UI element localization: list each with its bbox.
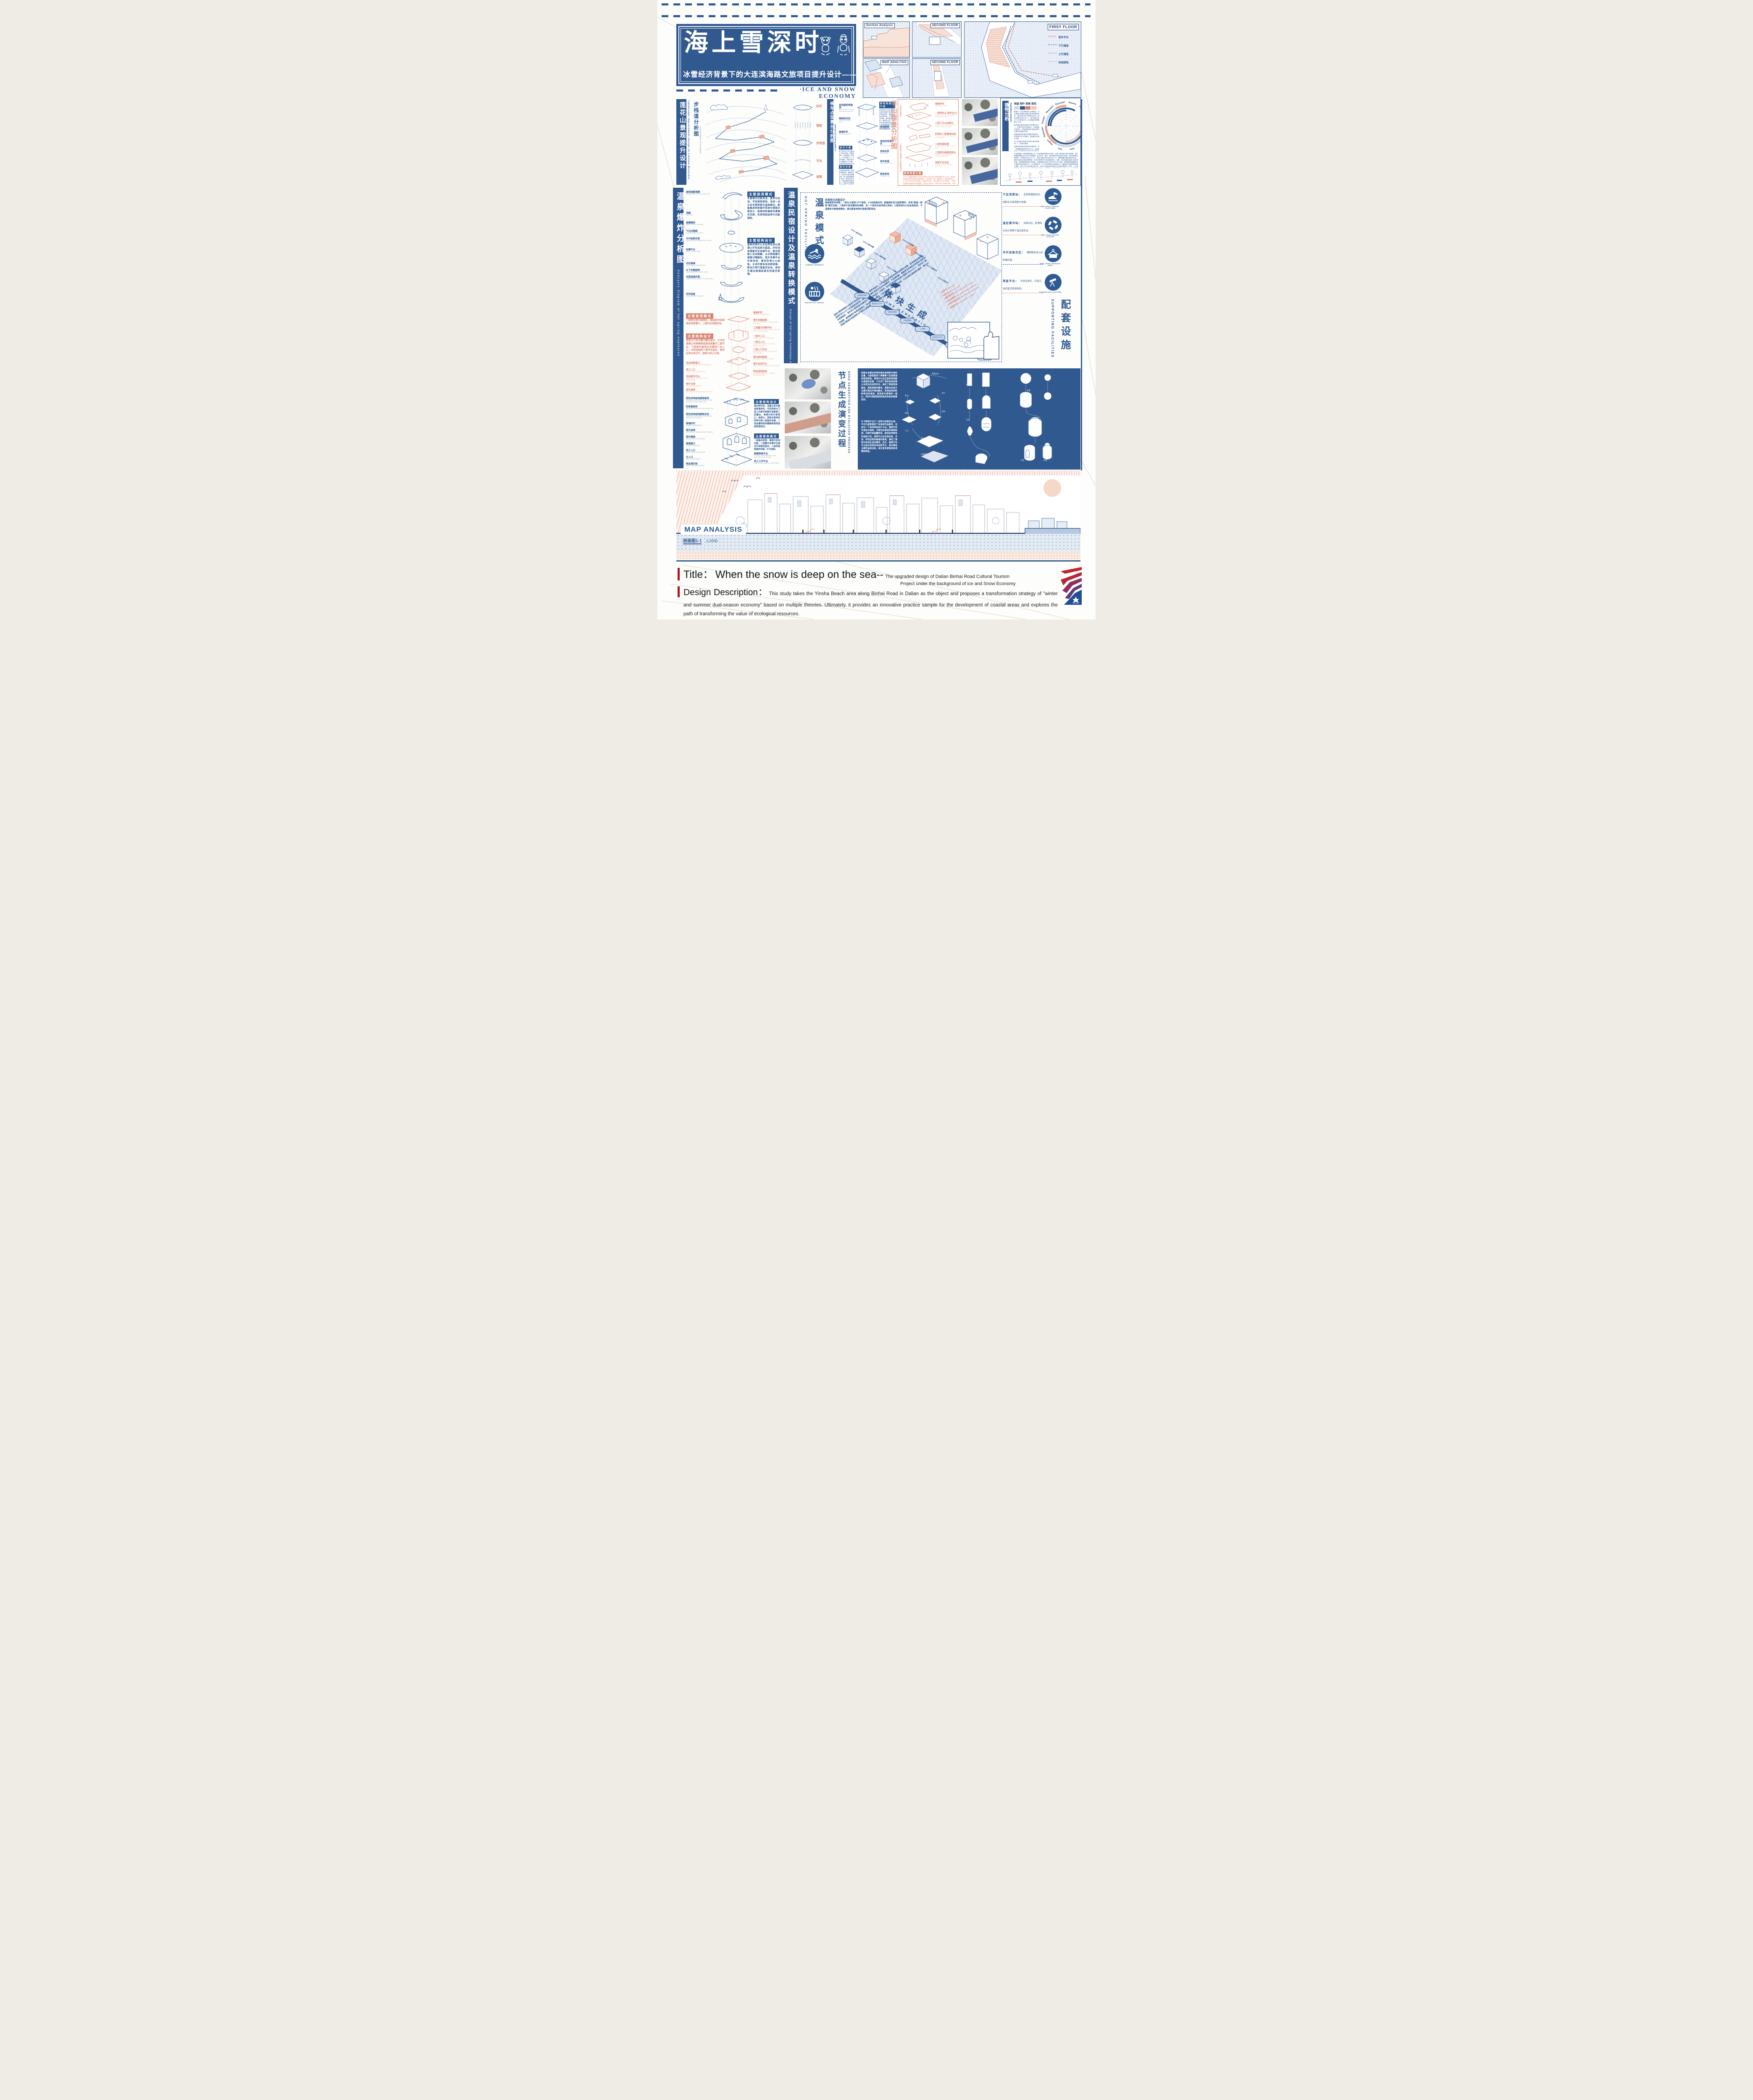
homestay-house-axon [975, 233, 1000, 264]
section-header: 主要结构设计 [754, 399, 779, 404]
section-text: 错层立方体与露天露台组合，正中的混凝土材质楼梯直接连接露天二层平台，下层室内咖啡… [686, 339, 725, 356]
section-header: 设计分析 [839, 165, 852, 169]
part-label: 购票等候平台TICKET PURCHASING AND WAITING PLAT… [754, 453, 780, 459]
pool-use-mode-block: 主要使用模式 冬夏模式切换灵活，夏季为泳池，可供游客使用，池深一点五米冬季转换为… [747, 190, 780, 220]
month-label: October [1041, 116, 1046, 124]
first-floor-legend: 室外平台 下行通道 上行通道 场地绿地 [1048, 32, 1078, 66]
part-label: 饮品领取窗口DRINK COLLECTION WINDOW [686, 362, 717, 366]
homestay-house-axon [923, 196, 949, 229]
section-header: 主要使用模式 [754, 433, 779, 438]
note-text: 对于半山腰处观景平台的设计借鉴之前的安吉茶室景馆的设计手法，希望在保留该处停车观… [903, 176, 955, 186]
section-text: 轴对称布局，混凝土体块高迪错落排布，中间拱券大门进入内部可两侧分流直通二层露台，… [754, 405, 780, 428]
section-header: 设计介绍 [839, 146, 852, 150]
halfmountain-note: 使用场景介绍 对于半山腰处观景平台的设计借鉴之前的安吉茶室景馆的设计手法，希望在… [903, 168, 955, 186]
halfmountain-exploded-axon [903, 101, 933, 168]
panel-label: SECOND FLOOR [930, 60, 960, 65]
waiting-title-bar: 候车点观景台分析图 [827, 99, 833, 185]
section-scale: 1:2000 [706, 539, 718, 543]
layer-label: 栏杆 [816, 105, 822, 108]
dashed-rule-under-top [662, 15, 1091, 17]
waiting-title-cn: 候车点观景台分析图 [828, 101, 834, 143]
part-label: 主入口MAIN ENTRANCE [686, 456, 717, 460]
section-header: 主要使用模式 [686, 313, 713, 319]
explosion-title-cn: 温泉爆炸分析图 [674, 192, 683, 265]
render-road [785, 412, 831, 433]
facility-ring-text: WET ZONE BUFFER STATION [1038, 234, 1063, 238]
supporting-item: 半开放换衣区： 兼顾隐私性与自然通风感。 [1003, 248, 1043, 265]
flow-step-pill: 开启遮阳棚 [900, 318, 915, 323]
section-analysis-panel: Section Analysis [863, 21, 910, 58]
facility-label: 观星平台： [1003, 280, 1019, 283]
section-name: 剖面图1-1 1:2000 [683, 537, 717, 544]
month-label: February [1078, 105, 1081, 114]
render-road [966, 139, 998, 153]
node-title-cn: 节点生成演变过程 [836, 371, 847, 468]
supporting-title-en: SUPPORTING FACILITIES [1051, 299, 1054, 362]
part-label: 室外桌椅OUTDOOR TABLES AND CHAIRS [686, 429, 717, 433]
part-label: 二层露天休憩平台THE SECOND FLOOR OPEN-AIR REST P… [753, 327, 780, 333]
part-label: 观景平台支柱Pillars of the viewing platform [935, 162, 957, 168]
vegetation-title-cn: 植物分析 [1003, 102, 1009, 121]
note-header: 使用场景介绍 [903, 171, 922, 175]
legend-label: 场地绿地 [1058, 62, 1068, 64]
decor-line [1085, 176, 1096, 314]
render-photo [962, 99, 998, 126]
part-label: 特色拱券结构廊架装饰SPECIAL ARCHED STRUCTURE PERGO… [686, 397, 717, 403]
flow-step-pill: 二次清洁 [915, 326, 930, 332]
cafe-use-mode-block: 主要使用模式 一层室内室外咖啡区，配备制作间和商品自取窗口，二层均为休憩空间。 [686, 312, 725, 326]
frame-line-bottom [676, 560, 1080, 562]
layer-label: 步栈道 [816, 142, 825, 145]
veg-paragraph: 玉兰的最佳种植时间是在春季或秋季，3、4月最为理想 [1014, 141, 1039, 145]
evolution-step-label: 场景模拟 [921, 453, 928, 456]
part-label: 室外休闲平台OUTDOOR LEISURE PLATFORM [753, 363, 780, 367]
footer-title-sub1: The upgraded design of Dalian Binhai Roa… [885, 574, 1009, 579]
render-photo [785, 436, 831, 469]
main-title: 海上雪深时 [684, 31, 823, 55]
evolution-step-label: 变形 [942, 410, 945, 413]
footpath-title-cn: 步栈道分析图 [693, 102, 700, 156]
hanger-icon [1045, 245, 1062, 262]
flow-step-pill: 全面清洁消毒 [854, 293, 870, 298]
layer-label: 平台 [816, 160, 822, 163]
legend-label: 上行通道 [1058, 53, 1068, 56]
homestay-title-cn: 温泉民宿设计及温泉转换模式 [786, 191, 796, 306]
halfmountain-panel: 一层停车观景点 二层室内文创咖啡厅与悬挑观景台 玻璃护栏Glass guardr… [898, 99, 959, 186]
legend-label: 室外平台 [1058, 37, 1068, 39]
flow-step-pill: 降温至24-28℃ [870, 301, 885, 307]
facility-label: 湿区缓冲站： [1003, 222, 1022, 225]
part-label: 钢结构支柱Steel structure pillar [839, 118, 854, 123]
lianhua-title-bar: 莲花山景观提升设计 [676, 99, 686, 185]
winter-icon-caption: WINTER HOT SPRING [802, 302, 827, 304]
evolution-step-label: 组装 [921, 437, 924, 440]
halfmountain-title-cn: 半山观景分析图 [889, 100, 898, 184]
facility-label: 干区观景站： [1003, 193, 1022, 196]
layer-label: 钢架 [816, 124, 822, 128]
part-label: 下沉式围椅SUNKEN ARMCHAIR [686, 230, 717, 234]
second-floor-panel-top: SECOND FLOOR [912, 21, 962, 58]
section-text: 温泉民宿中心无边界泳池以混凝土环形底座为基底，环形池体搭配环形休憩平台，更衣室嵌… [747, 244, 780, 276]
section-text: 冬夏模式切换灵活，夏季为泳池，可供游客使用，池深一点五米冬季转换为温泉模式，配备… [747, 197, 780, 220]
footer-title-row: Title： When the snow is deep on the sea-… [678, 566, 1060, 586]
part-label: 室外桌椅OUTDOOR TABLES AND CHAIRS [686, 389, 717, 393]
part-label: 室外长椅OUTDOOR BENCH [686, 383, 717, 387]
decor-line [1082, 319, 1096, 444]
summer-icon-caption: SUMMER SWIMMING [802, 264, 827, 266]
lifebuoy-icon [1045, 217, 1062, 234]
section-text: 不锈钢承担地基、梁架等承重结构，保障安全性，原木作为装饰覆盖外侧，减少直接接触恶… [839, 170, 854, 185]
panel-label: SECOND FLOOR [930, 23, 960, 28]
node-paragraph-1: 观景台设置在场地的高处或视野开阔的位置，为游客提供了俯瞰整个区域景观的绝佳视角。… [861, 372, 897, 418]
vegetation-summary: 大连滨海路一带的植物景观以人工与自然植被的融合为特色，形成了独特的山海生态廊道。… [1014, 153, 1078, 168]
render-photo [962, 157, 998, 185]
part-label: 休闲遮阳亭屋顶Roof of the leisure sunshade pavi… [839, 104, 854, 113]
massing-cube [866, 258, 876, 269]
part-label: 室内曲线座椅INDOOR CURVED SEATS [753, 356, 780, 360]
title-block: 海上雪深时 冰雪经济背景下的大连滨海路文旅项目提升设计—— [676, 24, 856, 86]
ticket-office-exploded-axon [720, 396, 752, 468]
red-accent-bar [678, 586, 680, 597]
render-photo [785, 402, 831, 433]
massing-cube [843, 235, 853, 246]
render-photo [785, 368, 831, 399]
legend-swatch-down-route [1048, 45, 1057, 45]
legend-label: 观姿 [1014, 103, 1019, 105]
massing-cube-pink [890, 231, 901, 243]
evolution-step-label: 外层 [1021, 459, 1024, 462]
part-label: 员工入口EMPLOYEE ENTRANCE [686, 449, 717, 454]
part-label: 二层地面肌理The texture of the second floor [935, 143, 957, 149]
render-photo [962, 128, 998, 155]
part-label: 一层次入口FIRST-LEVEL ENTRANCE [753, 335, 780, 339]
vegetation-section-strip [1004, 169, 1078, 183]
vegetation-legend: 观姿 观叶 观果 观花 [1014, 102, 1043, 110]
evolution-step-label: 内层 [1043, 459, 1047, 462]
legend-swatch-up-route [1048, 53, 1057, 53]
part-label: 特色造型装饰CHARACTERISTIC SHAPE DECORATION [753, 370, 780, 376]
part-label: 水下休憩座椅UNDERWATER REST SEAT [686, 269, 717, 273]
summer-swimming-icon [805, 244, 824, 263]
map-analysis-label-box: MAP ANALYSIS [681, 524, 746, 535]
part-label: 饮品制作平台BEVERAGE PRODUCTION PLATFORM [686, 375, 717, 381]
massing-cube [854, 247, 865, 257]
studio-logo [1061, 567, 1082, 606]
part-label: 玻璃护栏Glass guardrail [839, 131, 854, 135]
legend-label: 下行通道 [1058, 45, 1068, 47]
legend-swatch [1020, 106, 1025, 110]
supporting-item: 干区观景站： 全视角通透空间，适配全天候观景与休憩。 [1003, 190, 1043, 207]
evolution-step-label: 开洞 [966, 419, 970, 421]
footpath-exploded-layers [791, 101, 815, 183]
month-label: January [1068, 101, 1076, 106]
part-label: 夹胶玻璃外壁LAMINATED GLASS OUTER WALL [686, 276, 717, 280]
footer-title-main: When the snow is deep on the sea-- [715, 569, 883, 580]
explosion-title-en: AnaLysis diagram of hot spring explosion [677, 270, 680, 357]
node-paragraph-2: 打卡咖啡厅位于人流较为密集的区域，不仅为游客提供了休息和饮品服务，还成为一个具有… [861, 420, 897, 467]
footpath-title-en: AnaLysis diagram of the footpath [699, 126, 702, 181]
unit-function-text: 每栋建筑共四层，一层为大堂和LOFT客房，5.4米挑高空间，配备娱乐区与投影幕布… [825, 202, 922, 211]
part-label: 格栅围挡GRILLE ENCLOSURE [686, 222, 717, 226]
hand-phone-onsen-sketch [947, 319, 1000, 360]
render-plaza [788, 451, 831, 469]
render-pool [801, 378, 817, 390]
vegetation-paragraphs: 蔷薇在一年四季都是可以种植的，不过最佳的种植时间建议选择在春秋两季，春天和秋天的… [1014, 111, 1039, 151]
month-label: June [1070, 147, 1075, 151]
winter-hot-spring-icon [805, 282, 824, 301]
part-label: 休憩平台REST PLATFORM [686, 249, 717, 253]
layer-label: 底图 [816, 176, 822, 179]
footer-title-label: Title： [683, 569, 713, 580]
supporting-item: 湿区缓冲站： 衔接水区，防滑吸水设计保障干湿过渡安全。 [1003, 218, 1043, 235]
flow-step-pill: 切换泳池模式 [885, 310, 900, 315]
part-label: 遮阳格栅顶棚SUNSHADE GRILLE CEILING [686, 191, 717, 195]
section-header: 主要使用模式 [747, 192, 775, 197]
footer-desc-label: Design Description： [683, 588, 767, 597]
frame-line-right [1081, 99, 1082, 470]
first-floor-panel: FIRSY FLOOR 室外平台 下行通道 上行通道 场地绿地 [964, 21, 1081, 98]
part-label: 玻璃护栏GLASS GUARDRAIL [753, 312, 780, 316]
part-label: 玻璃护栏Glass guardrail [935, 103, 957, 107]
competition-board: 海上雪深时 冰雪经济背景下的大连滨海路文旅项目提升设计—— ·ICE AND S… [657, 0, 1096, 619]
part-label: 半开放更衣室SEMI-OPEN CHANGING ROOM [686, 238, 717, 242]
node-title-en: NODE GENERATION AND EVOLUTION PROCESS [847, 371, 850, 468]
part-label: 一层停车点 停车位×9Parking and viewing point on … [935, 112, 957, 118]
homestay-content: HOT SPRING FACILITIES 温泉模式 民宿单元功能设计 每栋建筑… [800, 192, 1002, 362]
part-label: 环形楼梯CIRCULAR STAIRCASE [686, 262, 717, 267]
ticket-structure-block: 主要结构设计 轴对称布局，混凝土体块高迪错落排布，中间拱券大门进入内部可两侧分流… [754, 397, 780, 428]
waiting-platform-panel: 候车点观景台分析图 Waiting area viewing platform … [827, 99, 896, 185]
footpath-contour-map [703, 100, 788, 184]
cafe-structure-block: 主要结构设计 错层立方体与露天露台组合，正中的混凝土材质楼梯直接连接露天二层平台… [686, 332, 725, 356]
dashed-rule-ice [676, 89, 780, 92]
part-label: 一层主入口MAIN ENTRANCE ON THE FIRST FLOOR [753, 341, 780, 347]
dashed-rule-top [662, 3, 1091, 5]
telescope-icon [1045, 274, 1062, 291]
part-label: 室外休憩桌椅OUTDOOR REST TABLES AND CHAIRS [753, 319, 780, 325]
flow-step-pill: 加热至30-35℃ [930, 335, 945, 340]
evolution-step-label: 移除 [905, 412, 908, 415]
legend-swatch [1025, 106, 1030, 110]
pool-structure-block: 主要结构设计 温泉民宿中心无边界泳池以混凝土环形底座为基底，环形池体搭配环形休憩… [747, 236, 780, 276]
planting-calendar-ring-chart: January February March April May June Ju… [1040, 100, 1081, 152]
homestay-house-axon [952, 210, 978, 242]
red-accent-bar [678, 568, 680, 580]
vegetation-title-bar: 植物分析 [1002, 101, 1009, 151]
footer-desc-row: Design Description： This study takes the… [678, 585, 1058, 619]
part-label: 环形底座RING-SHAPED BASE [686, 293, 717, 297]
halfmountain-side-label: 二层室内文创咖啡厅与悬挑观景台 [899, 143, 902, 184]
ticket-use-block: 主要使用模式 一层融合售票、储物与咨询功能，二层露天休憩平台通过外双路径直达，二… [754, 432, 780, 451]
evolution-step-label: 基础体块 [932, 373, 939, 375]
part-label: 玻璃护栏GLASS GUARDRAIL [686, 423, 717, 427]
section-text: 一层室内室外咖啡区，配备制作间和商品自取窗口，二层均为休憩空间。 [686, 319, 725, 326]
supporting-title-cn: 配套设施 [1057, 299, 1072, 362]
unit-function-header: 民宿单元功能设计 [825, 198, 922, 202]
panel-label: MAP ANALYSIS [880, 60, 908, 65]
legend-swatch-green [1048, 61, 1057, 62]
vegetation-title-en: Vegetation analysis [1009, 102, 1012, 149]
facility-ring-text: SEMI-OPEN CHANGING AREA [1038, 263, 1063, 266]
subtitle: 冰雪经济背景下的大连滨海路文旅项目提升设计—— [683, 68, 851, 79]
supporting-item: 观星平台： 开阔无遮栏，打造沉浸式星空观测体验。 [1003, 276, 1043, 293]
facility-ring-text: STARGAZING PLATFORM [1038, 291, 1063, 293]
part-label: 售票窗口TICKET WINDOW [686, 443, 717, 447]
evolution-step-label: 拆分 [942, 392, 945, 394]
part-label: 二层入口平台SECOND-FLOOR ENTRANCE PLATFORM [753, 349, 780, 354]
evolution-step-label: 下沉 [905, 430, 908, 432]
stippled-ground [676, 534, 1080, 551]
veg-paragraph: 蔷薇在一年四季都是可以种植的，不过最佳的种植时间建议选择在春秋两季，春天和秋天的… [1014, 111, 1039, 123]
evolution-step-label: 布置 [1027, 389, 1030, 392]
lianhua-title-cn: 莲花山景观提升设计 [678, 102, 686, 170]
facility-label: 半开放换衣区： [1003, 251, 1025, 254]
veg-paragraph: 春季通常是侧柏最佳的种植时间之一，在寒冷的冬季结束后，土壤湿度开始回升，侧柏能够… [1014, 124, 1039, 133]
part-label: 二层下沉山体部分The sunken mountain part on the … [935, 122, 957, 128]
beach-stipple [676, 551, 1080, 559]
homestay-title-en: Design of hot spring homestays and hot s… [789, 309, 792, 363]
unit-function-block: 民宿单元功能设计 每栋建筑共四层，一层为大堂和LOFT客房，5.4米挑高空间，配… [825, 198, 922, 211]
waiting-exploded-axon [855, 102, 879, 182]
map-analysis-panel: MAP ANALYSIS [863, 58, 910, 98]
render-road [973, 108, 998, 122]
render-road [970, 169, 998, 184]
panel-label: FIRSY FLOOR [1048, 24, 1079, 30]
part-label: 室外楼梯OUTDOOR STAIRCASE [686, 436, 717, 440]
facility-ring-text: DRY AREA VIEWING PLATFORM [1038, 206, 1063, 209]
month-label: July [1058, 147, 1062, 150]
evolution-step-label: 划分 [905, 394, 908, 397]
legend-swatch-outdoor-platform [1048, 36, 1057, 37]
second-floor-panel-bottom: SECOND FLOOR [912, 58, 962, 98]
legend-label: 观叶 [1020, 103, 1025, 105]
legend-label: 观果 [1025, 103, 1030, 105]
robot-skier-mascot-icon [837, 33, 850, 58]
part-label: 员工工作平台EMPLOYEE WORK PLATFORM [754, 460, 780, 465]
ring-pool-exploded-axon [717, 189, 746, 307]
homestay-title-bar: 温泉民宿设计及温泉转换模式 Design of hot spring homes… [784, 188, 798, 363]
part-label: 拱券窗装饰ARCHED WINDOW DECORATION [686, 406, 717, 410]
section-header: 主要结构设计 [747, 238, 775, 243]
waiting-title-en: Waiting area viewing platform [834, 124, 836, 183]
hot-spring-facilities-vertical: HOT SPRING FACILITIES [804, 196, 807, 280]
part-label: 特色拱券结构廊架支柱SPECIAL ARCHED STRUCTURE PERGO… [686, 413, 717, 419]
vegetation-panel: 植物分析 Vegetation analysis 观姿 观叶 观果 观花 蔷薇在… [1000, 98, 1081, 186]
panda-skier-mascot-icon [819, 35, 832, 57]
map-analysis-label: MAP ANALYSIS [684, 525, 742, 533]
legend-swatch [1031, 106, 1036, 110]
cafe-exploded-axon [725, 313, 752, 393]
design-analysis-block: 设计分析 不锈钢承担地基、梁架等承重结构，保障安全性，原木作为装饰覆盖外侧，减少… [839, 162, 854, 185]
explosion-title-bar: 温泉爆炸分析图 AnaLysis diagram of hot spring e… [673, 188, 683, 468]
section-drawing-band: MAP ANALYSIS 剖面图1-1 1:2000 [676, 470, 1080, 559]
node-evolution-panel: 观景台设置在场地的高处或视野开阔的位置，为游客提供了俯瞰整个区域景观的绝佳视角。… [858, 368, 1080, 470]
halfmountain-side-label: 一层停车观景点 [899, 104, 902, 142]
evolution-step-label: 细化 [966, 383, 970, 386]
part-label: 顶棚CEILING [686, 212, 717, 216]
legend-swatch [1014, 106, 1019, 110]
lianhua-title-en: Landscape improvement design of Lianhua … [687, 101, 690, 183]
legend-label: 观花 [1031, 103, 1036, 105]
lounger-umbrella-icon [1045, 188, 1062, 205]
part-label: 二层室外悬挑观景台Outdoor cantilevered viewing pl… [935, 152, 957, 157]
panel-label: Section Analysis [865, 23, 895, 28]
part-label: 阶梯与二层墙体构成The steps are composed of the w… [935, 133, 957, 139]
ice-snow-economy-banner: ·ICE AND SNOW ECONOMY [775, 87, 856, 100]
section-drawing-name: 剖面图1-1 [683, 539, 702, 544]
veg-paragraph: 迎春连翘的最佳种植时间是秋季。这一时期通常指的是9月至10月，这段时间被认为是播… [1014, 146, 1039, 151]
part-label: 员工入口EMPLOYEE ENTRANCE [686, 369, 717, 373]
section-header: 主要结构设计 [686, 333, 713, 339]
part-label: 物品储存架ITEM STORAGE RACK [686, 463, 717, 467]
section-text: 一层融合售票、储物与咨询功能，二层露天休憩平台通过外双路径直达，二层供游客临时休… [754, 439, 780, 451]
veg-paragraph: 紫藤的最佳种植时间是春季和秋季。特别是3月至4月期间，是紫藤的主要生长期 [1014, 134, 1039, 140]
